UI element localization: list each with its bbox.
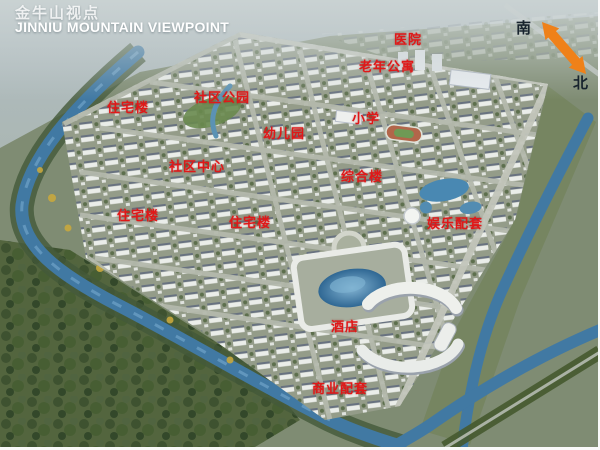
map-label-kindergarten: 幼儿园 [263,127,305,140]
map-label-residential-w: 住宅楼 [117,209,159,222]
map-label-hotel: 酒店 [331,320,359,333]
map-label-entertainment-amenities: 娱乐配套 [427,217,483,230]
map-label-hospital: 医院 [394,33,422,46]
map-label-commercial-amenities: 商业配套 [312,382,368,395]
map-label-community-center: 社区中心 [169,160,225,173]
compass-north-label: 北 [573,75,588,92]
map-label-residential-c: 住宅楼 [229,216,271,229]
map-label-community-park: 社区公园 [194,91,250,104]
map-label-residential-nw: 住宅楼 [107,101,149,114]
aerial-map-illustration: 南 北 [0,0,600,450]
map-label-senior-apartments: 老年公寓 [359,60,415,73]
page-title-en: JINNIU MOUNTAIN VIEWPOINT [15,19,229,35]
compass-south-label: 南 [516,19,531,37]
aerial-rendering: 南 北 金牛山视点 JINNIU MOUNTAIN VIEWPOINT 医院 老… [0,0,600,450]
dome-building [404,208,420,224]
map-label-primary-school: 小学 [352,112,380,125]
map-label-complex-building: 综合楼 [341,170,383,183]
